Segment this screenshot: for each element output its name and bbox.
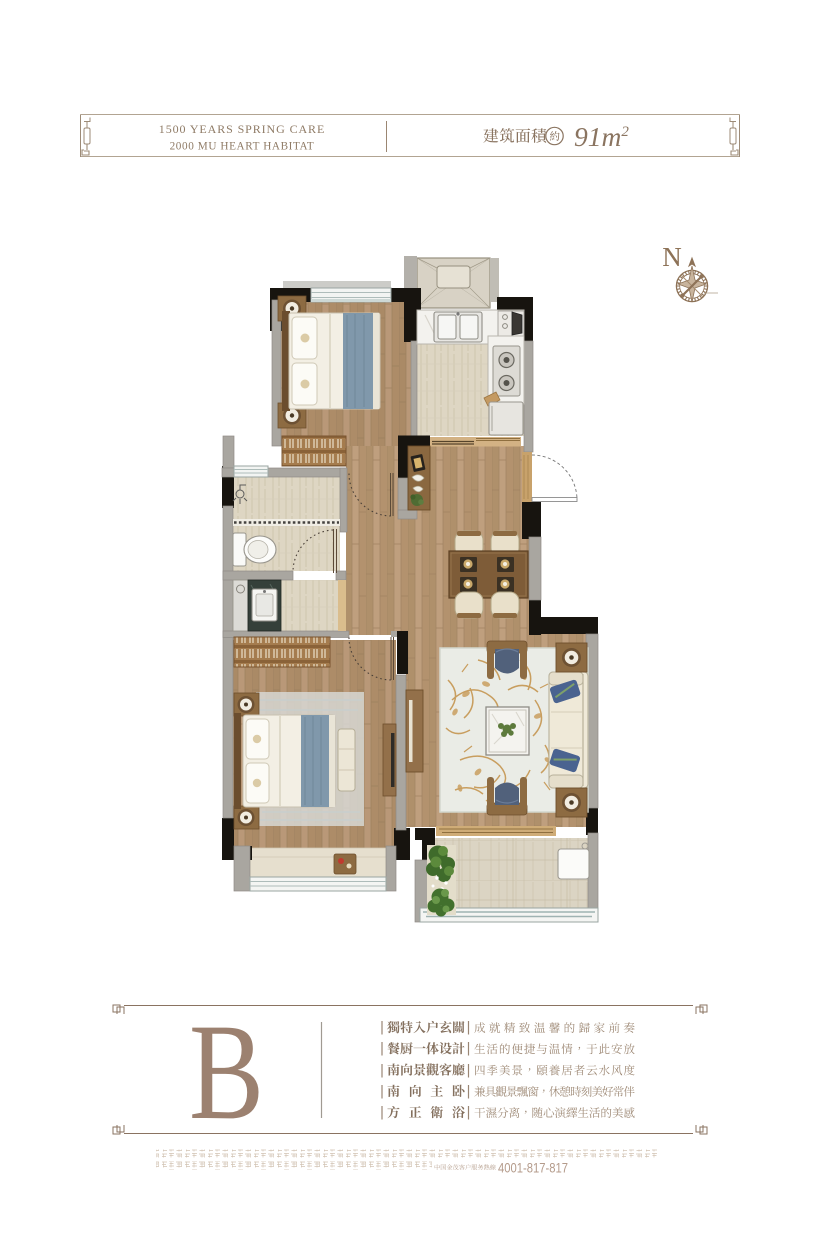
svg-text:91m2: 91m2: [574, 121, 629, 152]
svg-text:4001-817-817: 4001-817-817: [498, 1160, 568, 1176]
svg-text:N: N: [662, 242, 682, 272]
svg-text:B: B: [189, 995, 264, 1148]
svg-text:2000 MU HEART HABITAT: 2000 MU HEART HABITAT: [170, 141, 315, 153]
svg-text:1500 YEARS SPRING CARE: 1500 YEARS SPRING CARE: [159, 122, 325, 136]
